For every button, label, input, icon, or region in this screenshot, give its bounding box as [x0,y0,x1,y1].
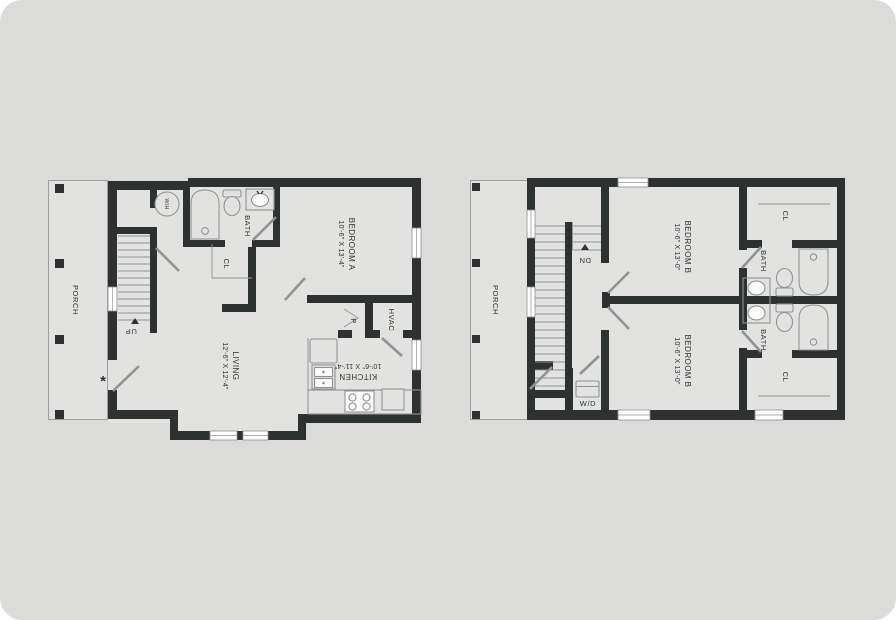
stove-icon [345,391,374,412]
sink-icon [246,189,274,210]
porch-post [55,184,64,193]
window [755,410,783,420]
bedroom-b-top-dims: 10'-6" X 13'-0" [673,223,680,271]
porch-post [55,259,64,268]
bath-label: BATH [243,215,252,237]
first-floor-plan: PORCH [49,178,422,440]
kitchen-sink-icon [312,365,335,389]
window [527,210,535,238]
closet-label: CL [222,259,231,270]
laundry-label: W/D [580,399,596,408]
stairs-up-label: UP [125,327,137,336]
bedroom-b-top-name: BEDROOM B [683,221,692,274]
bedroom-a-dims: 10'-6" X 13'-4" [337,220,344,268]
window [412,340,421,370]
porch-post [55,410,64,419]
porch-post [472,335,480,343]
bath-bottom-label: BATH [759,329,768,351]
window [108,287,117,311]
porch: PORCH [49,181,108,420]
bathtub-icon [799,305,828,350]
porch-post [472,411,480,419]
porch-post [472,259,480,267]
bedroom-b-bottom-name: BEDROOM B [683,335,692,388]
kitchen-name: KITCHEN [339,372,377,381]
pantry-label: P [349,318,358,324]
kitchen-dims: 10'-6" X 11'-4" [334,362,381,369]
water-heater-icon: W/H [155,192,179,216]
window [527,287,535,317]
floorplan-drawing: PORCH [0,0,896,620]
window [243,431,268,440]
living-name: LIVING [231,352,240,381]
washer-dryer-icon [576,381,599,397]
fridge-icon [310,339,337,363]
bathtub-icon [191,190,219,239]
water-heater-label: W/H [163,198,169,209]
counter-section [382,389,404,410]
toilet-icon [776,269,793,297]
toilet-icon [223,190,241,216]
second-floor-plan: PORCH [471,178,846,420]
porch-post [55,335,64,344]
window [210,431,237,440]
closet-top-label: CL [781,211,790,222]
toilet-icon [776,304,793,332]
porch-label: PORCH [491,285,500,315]
stairs-down-label: DN [579,256,591,265]
window [412,228,421,258]
window [618,178,648,187]
bathtub-icon [799,249,828,295]
window [618,410,650,420]
porch-label: PORCH [71,285,80,315]
bedroom-a-name: BEDROOM A [347,218,356,271]
floorplan-card: PORCH [0,0,896,620]
bath-top-label: BATH [759,250,768,272]
entry-asterisk-marker: * [100,373,106,390]
bedroom-b-bottom-dims: 10'-6" X 13'-0" [673,337,680,385]
porch: PORCH [471,181,528,420]
porch-post [472,183,480,191]
closet-bottom-label: CL [781,372,790,383]
living-dims: 12'-6" X 12'-4" [221,342,228,390]
hvac-label: HVAC [387,309,396,332]
